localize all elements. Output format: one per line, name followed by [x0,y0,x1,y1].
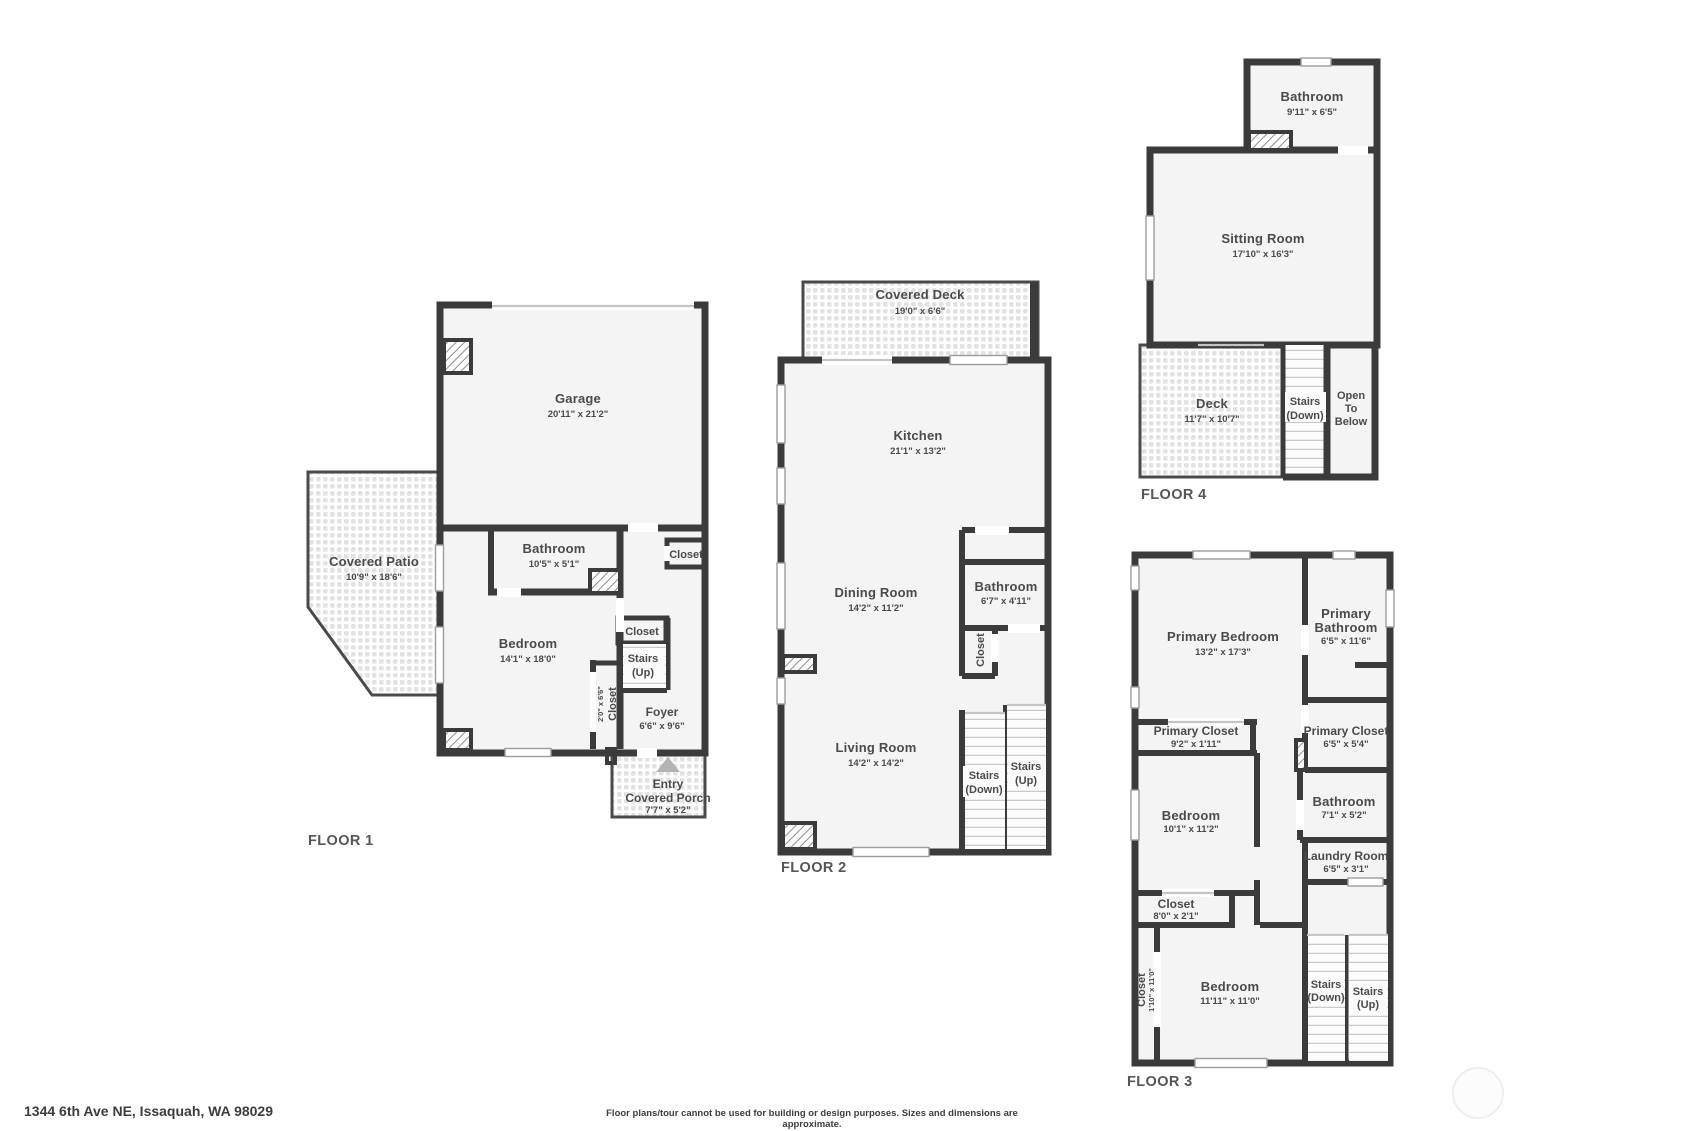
floorplans-svg: Garage 20'11" x 21'2" Covered Patio 10'9… [0,0,1697,1131]
floor4-bathroom-dims: 9'11" x 6'5" [1287,107,1337,118]
floor2-stairs-down-label-1: Stairs [969,770,1000,782]
floor4-stairs-label-2: (Down) [1286,410,1324,422]
covered-deck-dims: 19'0" x 6'6" [895,306,946,317]
porch-label-2: Covered Porch [625,791,710,805]
open-below-label-2: To [1345,403,1358,415]
primary-bathroom-label-2: Bathroom [1315,620,1378,635]
primary-bedroom-dims: 13'2" x 17'3" [1195,647,1251,658]
floor2-stairs-down-label-2: (Down) [965,784,1003,796]
floor4-deck-area [1140,345,1283,477]
floor3-stairs-down-label-2: (Down) [1307,992,1345,1004]
floorplan-page: Garage 20'11" x 21'2" Covered Patio 10'9… [0,0,1697,1131]
deck-dims: 11'7" x 10'7" [1184,414,1239,425]
floor1-bathroom-label: Bathroom [523,541,586,556]
living-room-dims: 14'2" x 14'2" [848,758,904,769]
floor1-stairs-label-2: (Up) [632,667,654,679]
open-below-label-1: Open [1337,390,1365,402]
floor3-bathroom-label: Bathroom [1313,794,1376,809]
floor1-bedroom-closet-dims: 2'0" x 6'6" [596,686,605,722]
floor1-stairs-label-1: Stairs [628,653,659,665]
floor2-bathroom-label: Bathroom [975,579,1038,594]
porch-dims: 7'7" x 5'2" [645,805,690,816]
floor3-bedroom-lower-label: Bedroom [1201,979,1259,994]
floor2-title: FLOOR 2 [781,860,847,876]
floor3-bedroom-lower-dims: 11'11" x 11'0" [1200,996,1260,1007]
floor3-closet-mid-label: Closet [1158,897,1195,911]
floor1-stairs-closet-label: Closet [625,626,659,638]
floor1-bedroom-closet-label: Closet [607,687,619,721]
floor2-bathroom-dims: 6'7" x 4'11" [981,596,1031,607]
open-below-label-3: Below [1335,416,1368,428]
primary-bedroom-label: Primary Bedroom [1167,629,1279,644]
floor3-plan: Primary Bedroom 13'2" x 17'3" Primary Ba… [1127,551,1394,1090]
floor3-stairs-down-label-1: Stairs [1311,979,1342,991]
floor3-bedroom-mid-dims: 10'1" x 11'2" [1163,824,1218,835]
porch-label-1: Entry [653,777,684,791]
floor4-title: FLOOR 4 [1141,487,1207,503]
kitchen-dims: 21'1" x 13'2" [890,446,946,457]
primary-closet-left-dims: 9'2" x 1'11" [1171,739,1221,750]
floor2-stairs-up-label-1: Stairs [1011,761,1042,773]
covered-patio-area [308,472,440,695]
floor4-plan: Bathroom 9'11" x 6'5" Sitting Room 17'10… [1140,58,1377,503]
laundry-room-label: Laundry Room [1304,849,1389,863]
floor3-closet-mid-dims: 8'0" x 2'1" [1153,911,1198,922]
floor3-title: FLOOR 3 [1127,1074,1193,1090]
floor4-sitting-box [1150,150,1377,345]
floor1-bedroom-dims: 14'1" x 18'0" [500,654,556,665]
covered-patio-label: Covered Patio [329,554,419,569]
floor3-bedroom-mid-label: Bedroom [1162,808,1220,823]
floor3-bathroom-dims: 7'1" x 5'2" [1321,810,1366,821]
primary-closet-right-label: Primary Closet [1304,724,1389,738]
floor3-closet-tall-dims: 1'10" x 11'0" [1147,968,1156,1012]
floor2-plan: Covered Deck 19'0" x 6'6" Kitchen 21'1" … [777,282,1048,876]
floor1-title: FLOOR 1 [308,833,374,849]
primary-closet-right-dims: 6'5" x 5'4" [1323,739,1368,750]
dining-room-label: Dining Room [834,585,917,600]
covered-patio-dims: 10'9" x 18'6" [346,572,402,583]
floor1-bathroom-dims: 10'5" x 5'1" [529,559,580,570]
floor1-bedroom-label: Bedroom [499,636,557,651]
address-text: 1344 6th Ave NE, Issaquah, WA 98029 [24,1103,273,1119]
floor4-stairs-label-1: Stairs [1290,396,1321,408]
foyer-dims: 6'6" x 9'6" [639,721,684,732]
floor3-stairs-up-label-2: (Up) [1357,999,1379,1011]
sitting-room-dims: 17'10" x 16'3" [1232,249,1293,260]
garage-dims: 20'11" x 21'2" [548,409,609,420]
covered-deck-label: Covered Deck [875,287,965,302]
living-room-label: Living Room [836,740,917,755]
floor2-closet-label: Closet [975,633,987,667]
deck-label: Deck [1196,396,1228,411]
floor3-stairs-up-label-1: Stairs [1353,986,1384,998]
floor1-hall-closet-label: Closet [669,549,703,561]
watermark-circle [1453,1068,1503,1118]
laundry-room-dims: 6'5" x 3'1" [1323,864,1368,875]
floor1-plan: Garage 20'11" x 21'2" Covered Patio 10'9… [308,300,711,849]
primary-bathroom-dims: 6'5" x 11'6" [1321,636,1371,647]
garage-label: Garage [555,391,601,406]
sitting-room-label: Sitting Room [1221,231,1304,246]
foyer-label: Foyer [646,705,679,719]
primary-closet-left-label: Primary Closet [1154,724,1239,738]
disclaimer-text: Floor plans/tour cannot be used for buil… [582,1108,1042,1130]
floor2-stairs-up-label-2: (Up) [1015,775,1037,787]
dining-room-dims: 14'2" x 11'2" [848,603,903,614]
kitchen-label: Kitchen [893,428,942,443]
primary-bathroom-label-1: Primary [1321,606,1371,621]
floor4-bathroom-label: Bathroom [1281,89,1344,104]
